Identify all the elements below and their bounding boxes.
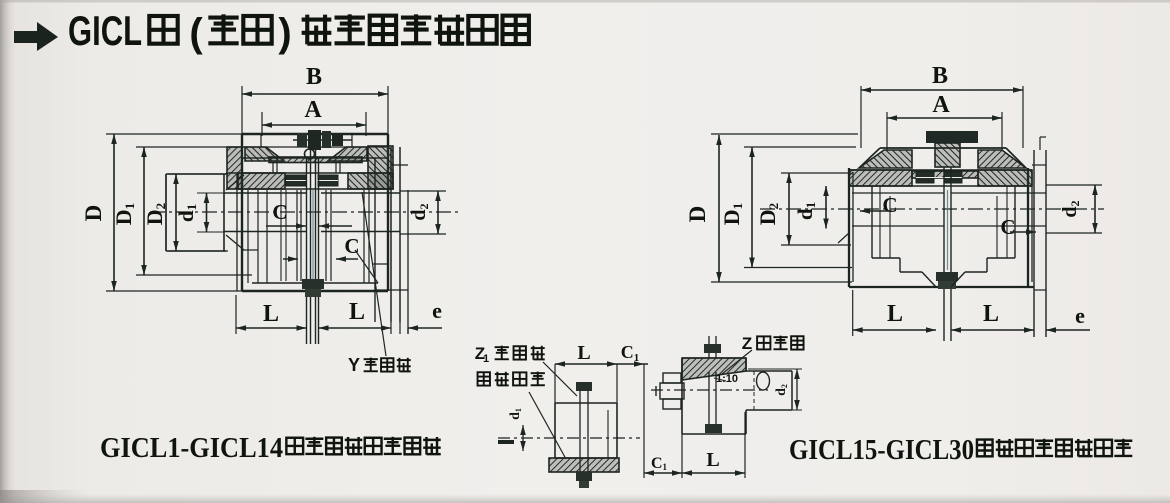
svg-text:A: A — [304, 97, 322, 123]
svg-text:L: L — [983, 301, 999, 327]
svg-text:L: L — [577, 342, 590, 364]
svg-text:L: L — [263, 301, 279, 327]
svg-text:): ) — [278, 11, 291, 55]
svg-text:L: L — [349, 299, 365, 325]
svg-text:GICL15-GICL30: GICL15-GICL30 — [789, 434, 974, 466]
svg-text:GICL: GICL — [68, 7, 142, 54]
svg-text:B: B — [306, 64, 322, 90]
svg-text:L: L — [706, 449, 719, 471]
svg-text:Z: Z — [742, 334, 752, 353]
svg-text:GICL1-GICL14: GICL1-GICL14 — [100, 432, 283, 464]
svg-text:L: L — [887, 301, 903, 327]
svg-text:e: e — [1075, 303, 1085, 328]
svg-text:D: D — [81, 205, 106, 222]
svg-text:C: C — [272, 200, 287, 224]
svg-text:(: ( — [189, 11, 203, 55]
svg-text:1: 1 — [483, 353, 489, 365]
svg-text:C: C — [1000, 215, 1015, 239]
svg-text:A: A — [932, 92, 950, 118]
svg-text:C: C — [882, 193, 897, 217]
svg-text:C: C — [344, 234, 359, 258]
svg-text:Y: Y — [348, 355, 360, 375]
svg-text:D: D — [685, 206, 710, 223]
svg-text:e: e — [432, 298, 442, 323]
svg-text:B: B — [932, 63, 948, 89]
